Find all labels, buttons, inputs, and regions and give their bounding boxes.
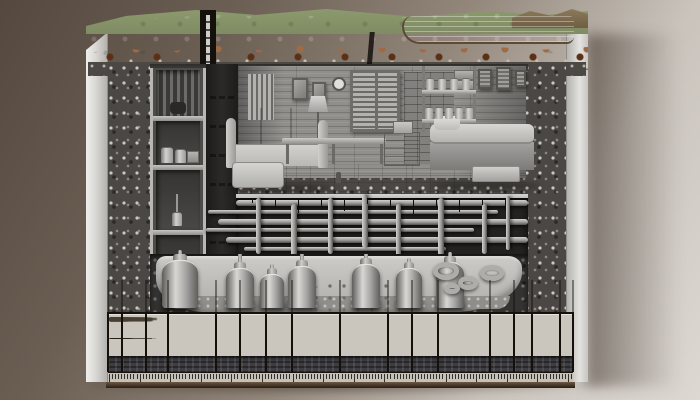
ruler-tick	[381, 374, 382, 379]
ruler-tick	[143, 374, 144, 379]
ruler-tick	[308, 374, 309, 379]
ruler-tick	[253, 374, 254, 379]
ruler-tick	[277, 374, 278, 379]
pipe-gallery	[236, 198, 528, 258]
supply-can	[435, 107, 443, 119]
ruler-tick	[241, 374, 242, 379]
crack-shaft-ladder	[206, 15, 210, 68]
ruler-tick	[152, 374, 153, 379]
ruler-tick	[283, 374, 284, 379]
ruler-tick	[237, 374, 238, 379]
ruler-tick	[158, 374, 159, 379]
supply-can	[450, 78, 458, 90]
ruler-tick	[494, 374, 495, 379]
tank-cap	[267, 268, 277, 274]
ruler-tick	[433, 374, 434, 379]
ruler-tick	[430, 374, 431, 379]
ruler-tick	[531, 374, 532, 379]
ruler-tick	[195, 374, 196, 379]
ruler-tick	[185, 374, 186, 379]
cast-shadow-right	[586, 34, 696, 386]
ruler-tick	[537, 374, 538, 382]
ruler-tick	[207, 374, 208, 379]
shelf-board	[422, 90, 476, 94]
ruler-tick	[192, 374, 193, 379]
ruler-tick	[513, 374, 514, 379]
ruler-tick	[317, 374, 318, 379]
hanger-rod	[367, 198, 368, 204]
ruler-tick	[179, 374, 180, 379]
ruler-tick	[421, 374, 422, 379]
ruler-tick	[485, 374, 486, 379]
ruler-tick	[452, 374, 453, 379]
ruler-tick	[161, 374, 162, 379]
column-line	[121, 312, 123, 372]
ruler-tick	[372, 374, 373, 379]
ruler-tick	[522, 374, 523, 379]
hanger-rod	[413, 198, 414, 214]
ruler-tick	[222, 374, 223, 379]
ruler-tick	[565, 374, 566, 379]
column-line	[559, 312, 561, 372]
vertical-pipe	[506, 196, 510, 250]
hanger-rod	[482, 198, 483, 205]
storage-box	[187, 151, 199, 163]
column-line	[215, 312, 217, 372]
legend-pseudo-text	[110, 318, 118, 320]
ruler-tick	[510, 374, 511, 379]
ruler-tick	[507, 374, 508, 382]
hanger-rod	[505, 198, 506, 210]
storage-compartment-2	[156, 121, 200, 165]
ruler-tick	[289, 374, 290, 379]
ruler-tick	[409, 374, 410, 379]
ground-crack	[200, 10, 216, 72]
ruler-tick	[210, 374, 211, 379]
column-line	[387, 312, 389, 372]
storage-crate	[384, 132, 420, 166]
column-line	[107, 312, 109, 372]
column-line	[167, 312, 169, 372]
ruler-tick	[124, 374, 125, 379]
column-line-upper	[265, 280, 267, 312]
ruler-tick	[436, 374, 437, 379]
ruler-tick	[412, 374, 413, 379]
tank-valve	[407, 258, 411, 262]
tank-cap	[360, 258, 371, 264]
ruler-tick	[296, 374, 297, 379]
hanger-rod	[390, 198, 391, 209]
column-line-upper	[411, 280, 413, 312]
ruler-tick	[528, 374, 529, 379]
bent-pipe	[433, 262, 459, 280]
crate-lid-box	[393, 121, 413, 134]
bed-shadow	[430, 182, 540, 190]
ruler-tick	[369, 374, 370, 379]
ruler-tick	[271, 374, 272, 379]
column-line-upper	[531, 280, 533, 312]
legend-cell	[108, 314, 121, 356]
column-line-upper	[572, 280, 574, 312]
vertical-pipe	[396, 204, 401, 258]
tank-cap	[173, 254, 187, 260]
ruler-tick	[473, 374, 474, 379]
ruler-tick	[556, 374, 557, 379]
ruler-tick	[378, 374, 379, 379]
tank-valve	[300, 256, 304, 260]
ruler-tick	[225, 374, 226, 379]
column-line-upper	[559, 280, 561, 312]
ruler-tick	[127, 374, 128, 379]
ruler-tick	[525, 374, 526, 379]
ruler-tick	[140, 374, 141, 382]
column-line-upper	[239, 280, 241, 312]
ruler-tick	[357, 374, 358, 379]
table-leg	[286, 144, 289, 164]
ruler-tick	[559, 374, 560, 379]
ruler-tick	[519, 374, 520, 379]
ruler-tick	[268, 374, 269, 379]
table-leg	[332, 144, 335, 164]
supply-can	[425, 107, 433, 119]
pump-pipe	[176, 194, 178, 212]
ruler-tick	[498, 374, 499, 379]
vertical-pipe	[256, 198, 261, 254]
ruler-tick	[173, 374, 174, 379]
block-left-face	[86, 32, 108, 382]
ruler-tick	[286, 374, 287, 379]
column-line-upper	[215, 280, 217, 312]
column-line-upper	[145, 280, 147, 312]
ruler-tick	[390, 374, 391, 379]
ruler-tick	[137, 374, 138, 379]
ruler-tick	[439, 374, 440, 379]
supply-can	[455, 107, 463, 119]
ruler-tick	[250, 374, 251, 379]
ruler-tick	[329, 374, 330, 379]
column-line	[411, 312, 413, 372]
canister	[175, 149, 186, 163]
column-line	[291, 312, 293, 372]
scene	[0, 0, 700, 400]
ruler-tick	[550, 374, 551, 379]
column-line-upper	[107, 280, 109, 312]
storage-tank	[396, 268, 422, 308]
ruler-tick	[130, 374, 131, 379]
ruler-tick	[476, 374, 477, 382]
ruler-tick	[366, 374, 367, 379]
ruler-tick	[133, 374, 134, 379]
ruler-tick	[479, 374, 480, 379]
supply-can	[426, 78, 434, 90]
shaft-riser-pipe	[210, 70, 216, 254]
ruler-tick	[354, 374, 355, 382]
ruler-tick	[155, 374, 156, 379]
column-line	[531, 312, 533, 372]
ruler-tick	[501, 374, 502, 379]
bed-step-bench	[472, 166, 520, 182]
ruler-tick	[400, 374, 401, 379]
ruler-tick	[387, 374, 388, 379]
ruler-tick	[121, 374, 122, 379]
ruler-tick	[213, 374, 214, 379]
tank-valve	[270, 264, 274, 268]
column-line	[489, 312, 491, 372]
ruler-tick	[274, 374, 275, 379]
ruler-tick	[293, 374, 294, 382]
ruler-tick	[455, 374, 456, 379]
wall-clock	[332, 77, 346, 91]
ruler-tick	[568, 374, 569, 382]
ruler-tick	[553, 374, 554, 379]
couch-armrest	[226, 118, 236, 168]
bent-pipe	[458, 276, 478, 290]
wall-vent-frame	[515, 70, 526, 87]
wall-vent-frame	[478, 69, 492, 89]
tank-cap	[296, 260, 307, 266]
ruler-tick	[201, 374, 202, 382]
ruler-strip	[108, 372, 573, 382]
supply-can	[462, 78, 470, 90]
tank-valve	[238, 258, 242, 262]
tank-valve	[364, 254, 368, 258]
cutaway-block	[86, 8, 588, 388]
ruler-tick	[546, 374, 547, 379]
ruler-tick	[305, 374, 306, 379]
column-line	[437, 312, 439, 372]
ruler-tick	[198, 374, 199, 379]
hanger-rod	[321, 198, 322, 206]
ruler-tick	[360, 374, 361, 379]
ruler-tick	[244, 374, 245, 379]
ruler-tick	[394, 374, 395, 379]
tank-cap	[234, 262, 245, 268]
ruler-tick	[464, 374, 465, 379]
storage-compartment-3	[156, 170, 200, 230]
hanger-rod	[344, 198, 345, 211]
horizontal-pipe	[206, 228, 474, 232]
ruler-tick	[562, 374, 563, 379]
ruler-tick	[534, 374, 535, 379]
ruler-tick	[335, 374, 336, 379]
horizontal-pipe	[208, 210, 498, 214]
ruler-tick	[363, 374, 364, 379]
ruler-tick	[467, 374, 468, 379]
ruler-tick	[228, 374, 229, 379]
ruler-tick	[338, 374, 339, 379]
column-line	[339, 312, 341, 372]
ruler-tick	[176, 374, 177, 379]
ruler-tick	[449, 374, 450, 379]
ruler-tick	[571, 374, 572, 379]
column-line	[239, 312, 241, 372]
hanger-rod	[275, 198, 276, 208]
ruler-tick	[442, 374, 443, 379]
ruler-tick	[470, 374, 471, 379]
ruler-tick	[458, 374, 459, 379]
ruler-tick	[259, 374, 260, 379]
column-line-upper	[387, 280, 389, 312]
ruler-tick	[109, 374, 110, 382]
ruler-tick	[146, 374, 147, 379]
ruler-tick	[543, 374, 544, 379]
ruler-tick	[351, 374, 352, 379]
ruler-tick	[219, 374, 220, 379]
ruler-tick	[415, 374, 416, 382]
ruler-tick	[323, 374, 324, 382]
ruler-tick	[170, 374, 171, 382]
supply-can	[445, 107, 453, 119]
ruler-tick	[320, 374, 321, 379]
couch-chaise	[232, 162, 284, 188]
supply-can	[465, 107, 473, 119]
storage-tank	[260, 274, 284, 308]
supply-can	[438, 78, 446, 90]
wall-picture	[292, 78, 308, 100]
ruler-tick	[446, 374, 447, 382]
ruler-tick	[311, 374, 312, 379]
ruler-tick	[424, 374, 425, 379]
pump-unit	[172, 212, 182, 226]
ruler-tick	[204, 374, 205, 379]
ruler-tick	[326, 374, 327, 379]
column-line	[145, 312, 147, 372]
ruler-tick	[482, 374, 483, 379]
stored-object	[170, 102, 186, 114]
ruler-tick	[488, 374, 489, 379]
ruler-tick	[384, 374, 385, 382]
column-line	[513, 312, 515, 372]
tank-cap	[404, 262, 414, 268]
couch-armrest	[318, 120, 328, 168]
wall-vent-frame	[496, 67, 511, 90]
canister	[161, 147, 173, 163]
ruler-tick	[262, 374, 263, 382]
ruler-tick	[118, 374, 119, 379]
ruler-tick	[314, 374, 315, 379]
ruler-tick	[256, 374, 257, 379]
ruler-tick	[332, 374, 333, 379]
table-leg	[380, 144, 383, 164]
ruler-tick	[345, 374, 346, 379]
column-line-upper	[291, 280, 293, 312]
ruler-tick	[397, 374, 398, 379]
ruler-tick	[406, 374, 407, 379]
column-line-upper	[489, 280, 491, 312]
terrain-pond	[402, 16, 574, 44]
ruler-tick	[112, 374, 113, 379]
ruler-tick	[234, 374, 235, 379]
floor-bottle	[336, 172, 341, 183]
ruler-tick	[342, 374, 343, 379]
horizontal-pipe	[244, 247, 446, 251]
ruler-tick	[418, 374, 419, 379]
ruler-tick	[491, 374, 492, 379]
ruler-tick	[403, 374, 404, 379]
storage-compartment-1	[156, 70, 200, 116]
ruler-tick	[427, 374, 428, 379]
ruler-tick	[182, 374, 183, 379]
ruler-tick	[461, 374, 462, 379]
ruler-tick	[375, 374, 376, 379]
column-line-upper	[513, 280, 515, 312]
ruler-tick	[189, 374, 190, 379]
vertical-pipe	[438, 198, 444, 256]
ruler-tick	[115, 374, 116, 379]
ruler-tick	[302, 374, 303, 379]
column-line-upper	[437, 280, 439, 312]
column-line-upper	[121, 280, 123, 312]
ruler-tick	[149, 374, 150, 379]
ruler-tick	[265, 374, 266, 379]
hanger-rod	[298, 198, 299, 213]
ruler-tick	[299, 374, 300, 379]
column-line	[265, 312, 267, 372]
column-line-upper	[339, 280, 341, 312]
ruler-tick	[280, 374, 281, 379]
hanger-rod	[436, 198, 437, 207]
storage-tank	[352, 264, 380, 308]
ruler-tick	[504, 374, 505, 379]
hanger-rod	[252, 198, 253, 203]
hanger-rod	[459, 198, 460, 212]
tank-valve	[178, 250, 182, 254]
ruler-tick	[216, 374, 217, 379]
ruler-tick	[231, 374, 232, 382]
base-edge	[106, 382, 575, 388]
vertical-pipe	[482, 204, 487, 254]
vertical-pipe	[328, 198, 333, 254]
tank-valve	[448, 252, 452, 256]
column-line-upper	[167, 280, 169, 312]
shaft-riser-pipe	[219, 70, 225, 254]
ruler-tick	[516, 374, 517, 379]
ruler-tick	[540, 374, 541, 379]
window-divider	[375, 73, 378, 129]
column-line	[572, 312, 574, 372]
bent-pipe	[480, 265, 504, 282]
vertical-pipe	[291, 204, 297, 258]
ruler-tick	[167, 374, 168, 379]
ruler-tick	[164, 374, 165, 379]
ruler-tick	[348, 374, 349, 379]
ruler-tick	[247, 374, 248, 379]
